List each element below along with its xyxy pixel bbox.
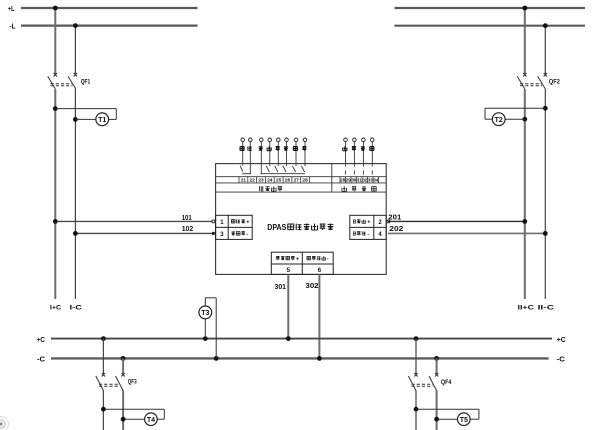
svg-text:+C: +C xyxy=(37,337,46,344)
svg-text:B: B xyxy=(353,232,357,238)
svg-text:T2: T2 xyxy=(495,117,503,124)
svg-text:+: + xyxy=(246,220,249,226)
svg-text:-: - xyxy=(246,231,248,237)
svg-text:QF2: QF2 xyxy=(549,79,560,86)
svg-text:DPAS: DPAS xyxy=(267,223,286,232)
svg-text:I+C: I+C xyxy=(50,304,61,311)
svg-text:QF3: QF3 xyxy=(128,379,137,386)
svg-text:+C: +C xyxy=(557,337,566,344)
svg-text:+: + xyxy=(367,220,370,226)
svg-text:QF4: QF4 xyxy=(441,379,452,386)
svg-text:26: 26 xyxy=(285,178,291,184)
svg-text:23: 23 xyxy=(258,178,264,184)
svg-text:B: B xyxy=(353,220,357,226)
svg-text:102: 102 xyxy=(182,226,194,233)
svg-text:24: 24 xyxy=(267,178,273,184)
svg-text:301: 301 xyxy=(275,282,287,291)
svg-text:-C: -C xyxy=(37,356,45,363)
svg-text:QF1: QF1 xyxy=(81,78,91,85)
svg-text:34: 34 xyxy=(373,178,378,183)
svg-text:T1: T1 xyxy=(98,117,106,124)
svg-text:22: 22 xyxy=(250,178,256,184)
svg-text:II-C: II-C xyxy=(538,304,555,311)
svg-text:25: 25 xyxy=(276,178,282,184)
svg-text:302: 302 xyxy=(306,281,319,290)
svg-text:201: 201 xyxy=(388,214,401,221)
svg-text:101: 101 xyxy=(182,215,192,222)
svg-text:-: - xyxy=(327,256,329,262)
svg-text:T5: T5 xyxy=(460,417,468,424)
svg-text:28: 28 xyxy=(302,178,308,184)
svg-text:I-C: I-C xyxy=(70,304,83,311)
svg-text:-: - xyxy=(367,231,369,237)
svg-text:T3: T3 xyxy=(201,310,209,317)
svg-text:-C: -C xyxy=(557,356,566,363)
svg-text:27: 27 xyxy=(294,178,300,184)
svg-text:II+C: II+C xyxy=(518,304,535,311)
svg-text:T4: T4 xyxy=(147,417,155,424)
svg-text:-L: -L xyxy=(10,21,16,30)
svg-text:202: 202 xyxy=(389,226,403,233)
svg-text:+: + xyxy=(296,256,299,262)
svg-text:21: 21 xyxy=(241,178,247,184)
svg-text:+L: +L xyxy=(8,4,15,13)
